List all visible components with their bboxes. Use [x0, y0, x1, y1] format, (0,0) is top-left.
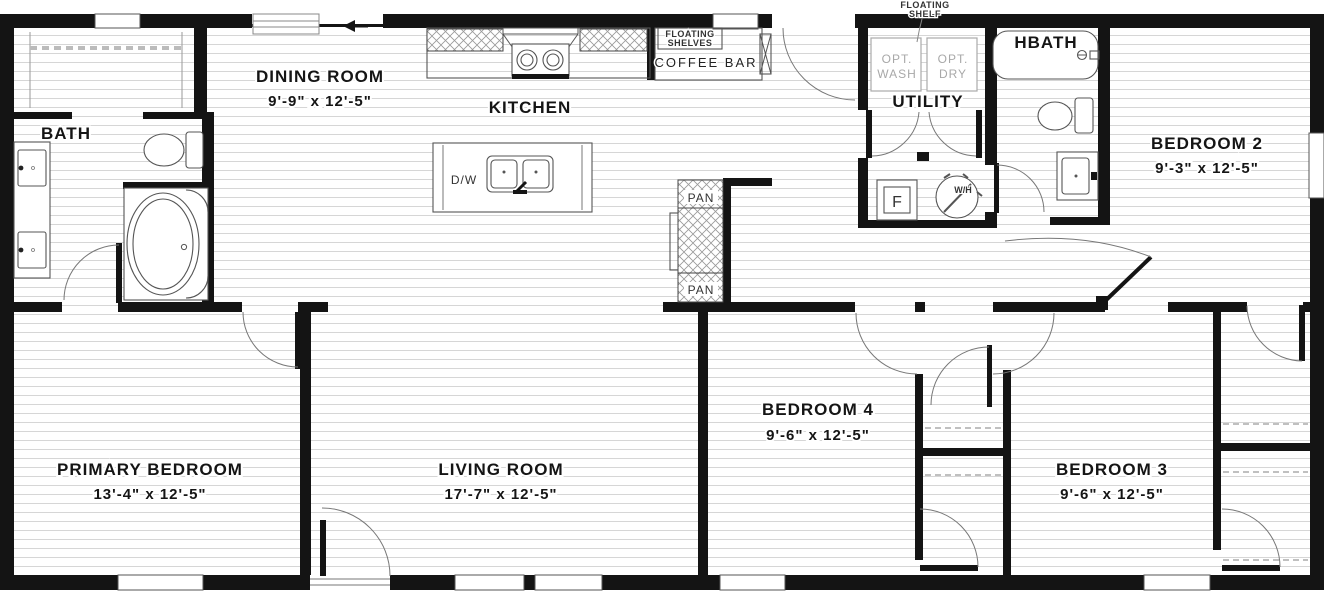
opt-wash-label-2: WASH: [877, 67, 917, 81]
window-living-2: [535, 575, 602, 590]
pantry-label-top: PAN: [688, 191, 715, 205]
hbath-toilet-tank: [1075, 98, 1093, 133]
room-dims-dining: 9'-9" x 12'-5": [268, 93, 372, 110]
entry-steps: [253, 14, 319, 34]
floating-shelf-label-2: SHELF: [909, 9, 941, 19]
floating-shelves-label-2: SHELVES: [668, 38, 713, 48]
floor-plan-page: DINING ROOM 9'-9" x 12'-5" KITCHEN BATH …: [0, 0, 1324, 600]
room-label-bedroom2: BEDROOM 2: [1151, 134, 1263, 153]
upper-cabinet-1: [427, 29, 503, 51]
room-label-primary: PRIMARY BEDROOM: [57, 460, 243, 479]
room-label-dining: DINING ROOM: [256, 67, 384, 86]
toilet-bowl: [144, 134, 184, 166]
door-threshold-living: [310, 575, 390, 590]
room-label-bath: BATH: [41, 124, 91, 143]
room-label-hbath: HBATH: [1014, 33, 1077, 52]
room-label-utility: UTILITY: [892, 92, 963, 111]
room-label-bedroom4: BEDROOM 4: [762, 400, 874, 419]
water-heater-label: W/H: [954, 185, 972, 195]
room-label-living: LIVING ROOM: [438, 460, 563, 479]
window-bedroom4: [720, 575, 785, 590]
room-dims-bedroom4: 9'-6" x 12'-5": [766, 427, 870, 444]
tub-surround: [124, 188, 208, 300]
opt-dry-label-1: OPT.: [938, 52, 969, 66]
window-closet: [95, 14, 140, 28]
room-dims-living: 17'-7" x 12'-5": [444, 486, 557, 503]
opt-dry-label-2: DRY: [939, 67, 967, 81]
window-primary: [118, 575, 203, 590]
room-label-kitchen: KITCHEN: [489, 98, 572, 117]
toilet-tank: [186, 132, 203, 168]
room-dims-primary: 13'-4" x 12'-5": [93, 486, 206, 503]
hbath-toilet-bowl: [1038, 102, 1072, 130]
room-dims-bedroom3: 9'-6" x 12'-5": [1060, 486, 1164, 503]
furnace-label: F: [892, 194, 902, 211]
utility-door-leaf-left: [866, 110, 872, 158]
opt-wash-label-1: OPT.: [882, 52, 913, 66]
upper-cabinet-2: [580, 29, 647, 51]
pantry-label-bottom: PAN: [688, 283, 715, 297]
room-dims-bedroom2: 9'-3" x 12'-5": [1155, 160, 1259, 177]
window-bedroom3: [1144, 575, 1210, 590]
utility-door-leaf-right: [976, 110, 982, 158]
window-bedroom2: [1309, 133, 1324, 198]
room-label-bedroom3: BEDROOM 3: [1056, 460, 1168, 479]
window-living-1: [455, 575, 524, 590]
door-leaf-top: [713, 14, 758, 29]
dishwasher-label: D/W: [451, 173, 477, 187]
floor-plan-drawing: DINING ROOM 9'-9" x 12'-5" KITCHEN BATH …: [0, 0, 1324, 600]
coffee-bar-label: COFFEE BAR: [654, 55, 757, 70]
